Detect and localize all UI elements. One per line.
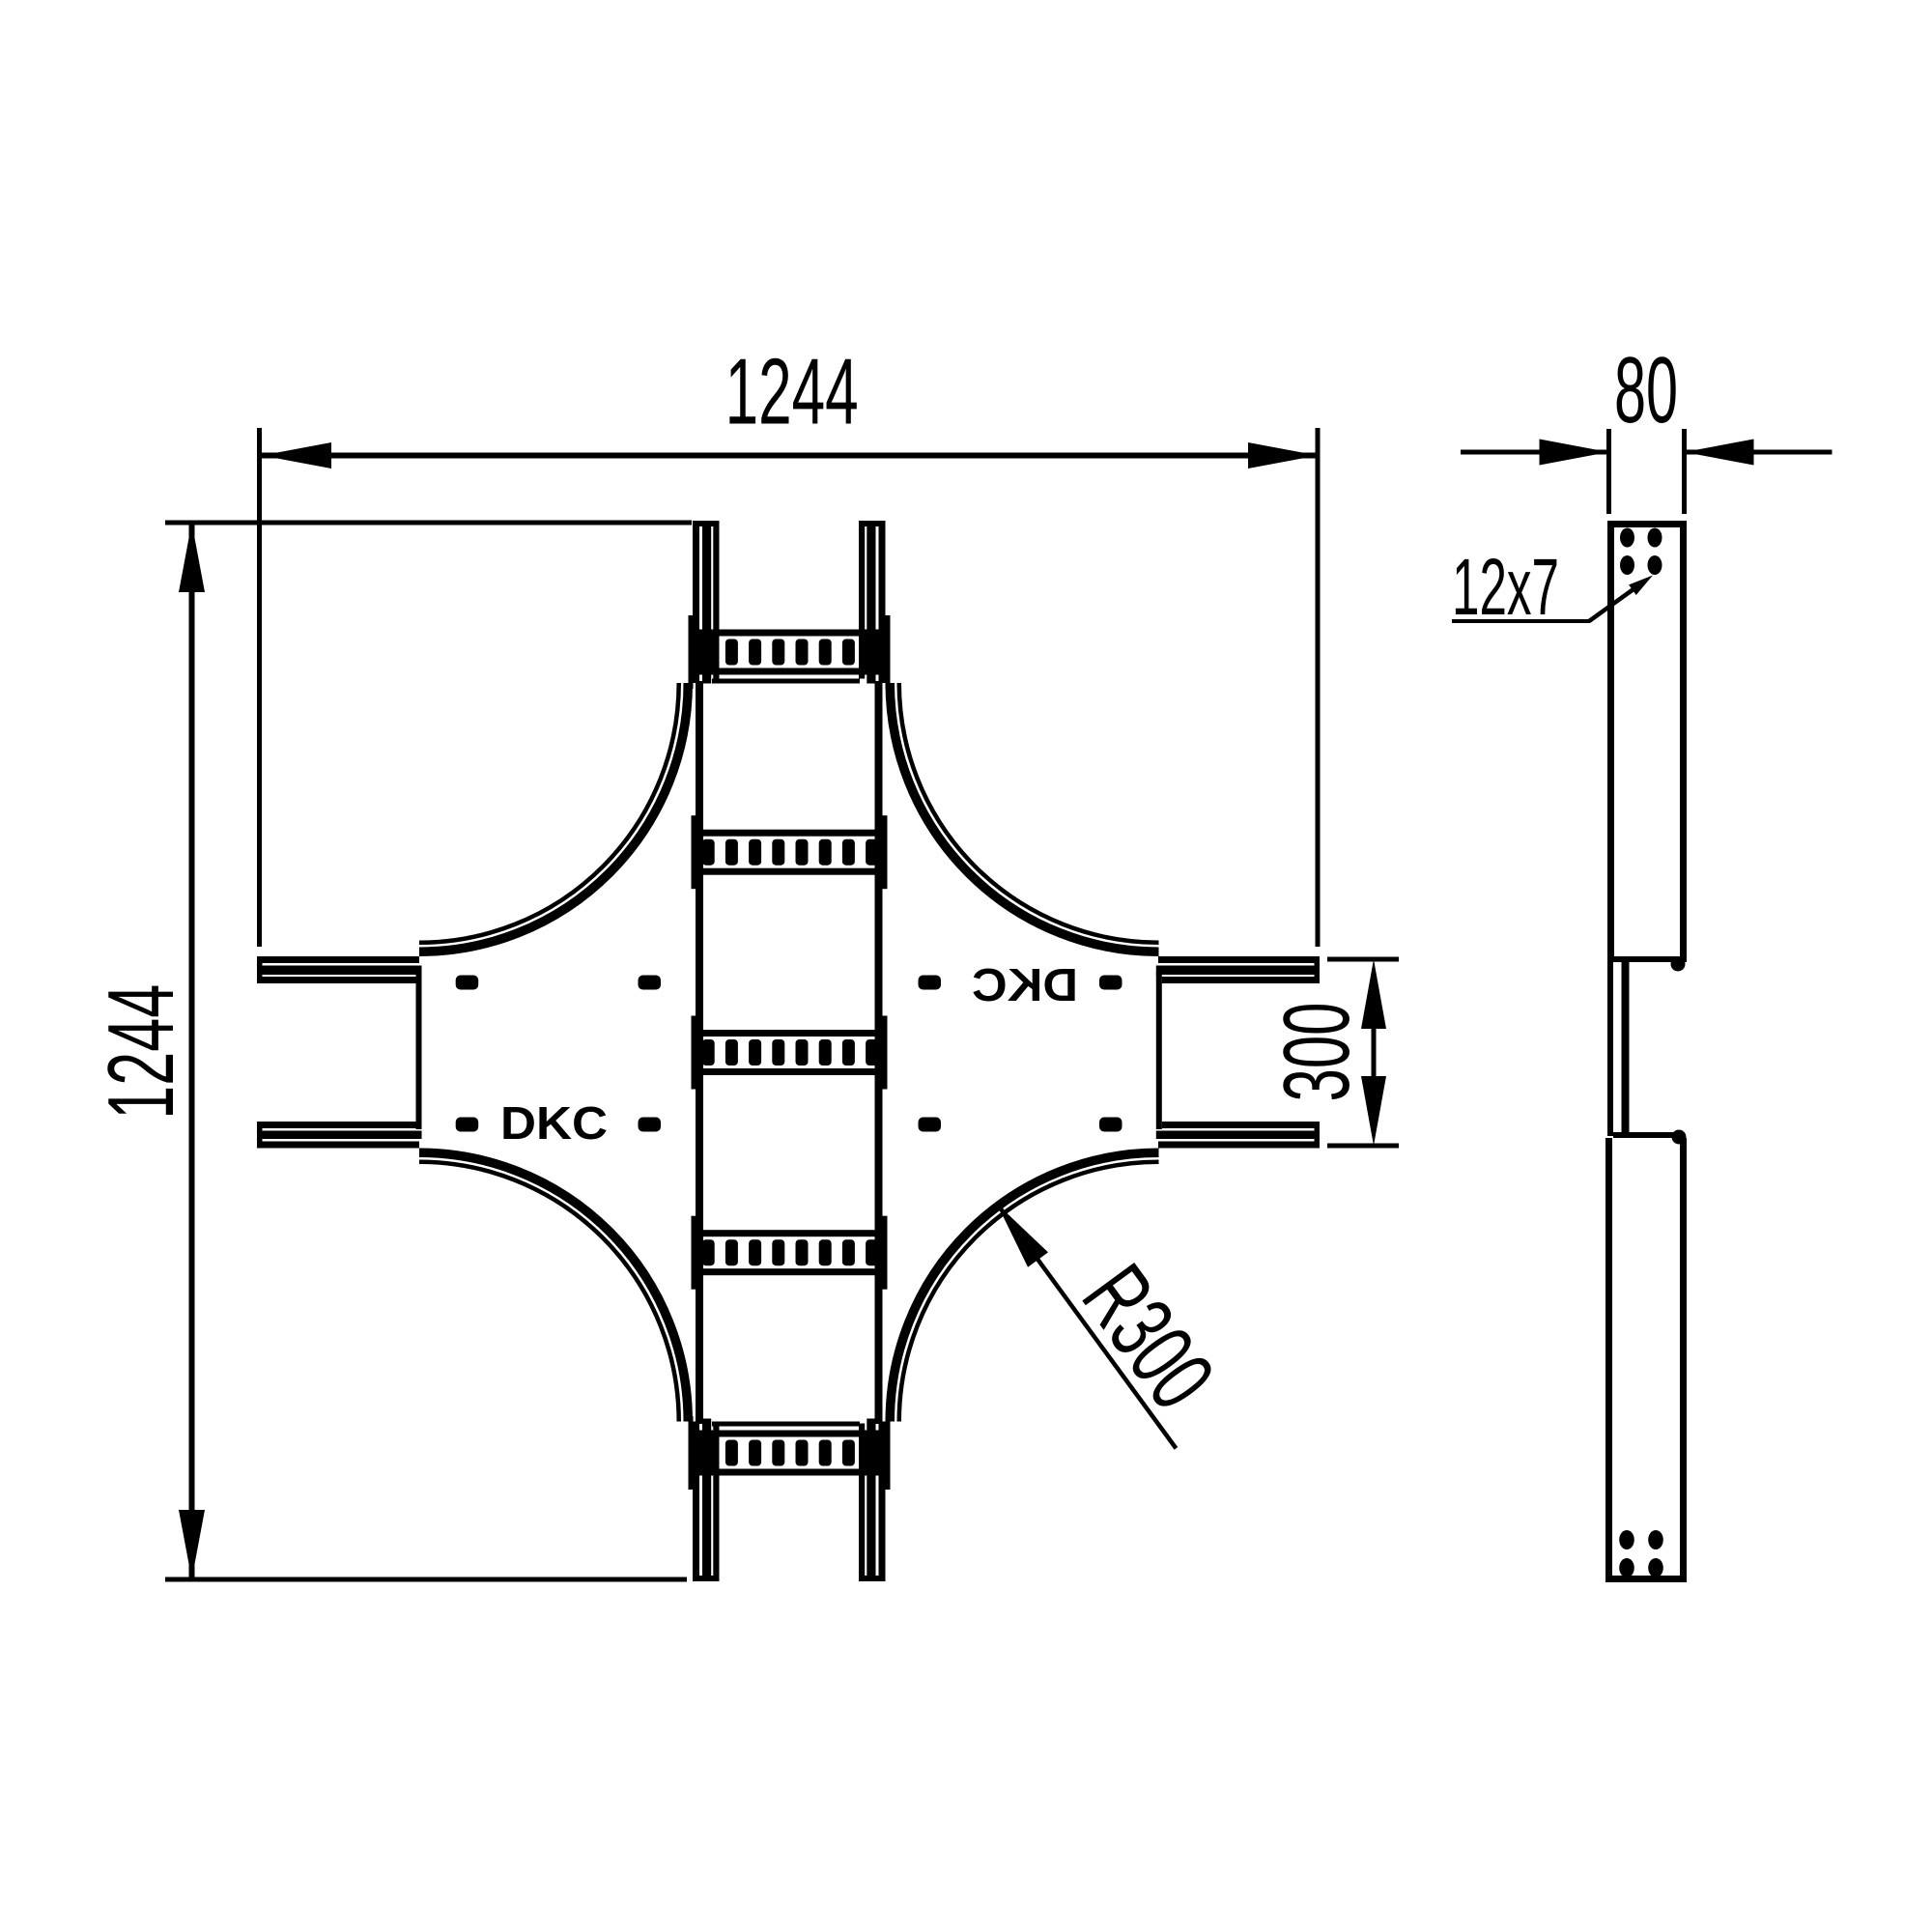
svg-text:1244: 1244 <box>725 339 859 444</box>
svg-text:300: 300 <box>1264 1003 1369 1102</box>
svg-text:DKC: DKC <box>972 960 1078 1011</box>
svg-text:1244: 1244 <box>88 984 193 1120</box>
svg-text:12x7: 12x7 <box>1452 542 1559 632</box>
svg-text:80: 80 <box>1614 337 1678 442</box>
svg-text:DKC: DKC <box>500 1098 608 1150</box>
